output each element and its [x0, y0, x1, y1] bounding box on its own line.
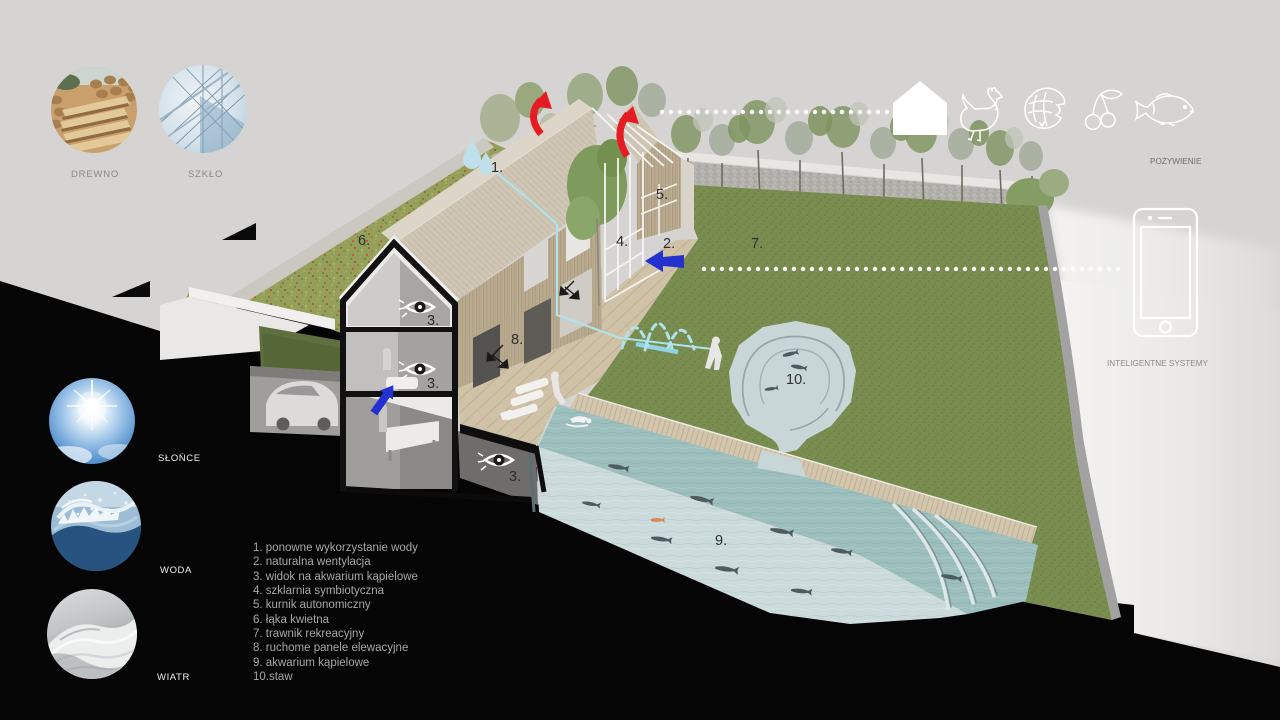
- svg-text:1. ponowne wykorzystanie wody: 1. ponowne wykorzystanie wody: [253, 542, 418, 554]
- svg-text:6. łąka kwietna: 6. łąka kwietna: [253, 614, 330, 626]
- svg-text:7. trawnik rekreacyjny: 7. trawnik rekreacyjny: [253, 628, 364, 640]
- svg-text:8.: 8.: [511, 332, 523, 348]
- svg-text:3.: 3.: [509, 469, 521, 485]
- svg-text:1.: 1.: [491, 160, 503, 176]
- svg-text:2. naturalna wentylacja: 2. naturalna wentylacja: [253, 556, 371, 568]
- svg-text:SŁOŃCE: SŁOŃCE: [158, 453, 201, 464]
- svg-text:5.: 5.: [656, 187, 668, 203]
- svg-text:POŻYWIENIE: POŻYWIENIE: [1150, 156, 1202, 166]
- svg-text:SZKŁO: SZKŁO: [188, 169, 223, 180]
- svg-text:2.: 2.: [663, 236, 675, 252]
- svg-text:3. widok na akwarium kąpielowe: 3. widok na akwarium kąpielowe: [253, 571, 418, 583]
- svg-text:3.: 3.: [427, 376, 439, 392]
- svg-text:6.: 6.: [358, 233, 370, 249]
- svg-text:5. kurnik autonomiczny: 5. kurnik autonomiczny: [253, 599, 371, 611]
- svg-text:WODA: WODA: [160, 565, 192, 576]
- svg-text:9.: 9.: [715, 533, 727, 549]
- svg-text:INTELIGENTNE SYSTEMY: INTELIGENTNE SYSTEMY: [1107, 359, 1209, 368]
- svg-text:9. akwarium kąpielowe: 9. akwarium kąpielowe: [253, 657, 369, 669]
- svg-text:10.: 10.: [786, 372, 806, 388]
- svg-text:WIATR: WIATR: [157, 672, 190, 683]
- svg-text:8. ruchome panele elewacyjne: 8. ruchome panele elewacyjne: [253, 642, 408, 654]
- svg-text:3.: 3.: [427, 313, 439, 329]
- svg-text:DREWNO: DREWNO: [71, 169, 119, 180]
- svg-text:7.: 7.: [751, 236, 763, 252]
- svg-text:4.: 4.: [616, 234, 628, 250]
- svg-text:4. szklarnia symbiotyczna: 4. szklarnia symbiotyczna: [253, 585, 385, 597]
- svg-text:10.staw: 10.staw: [253, 671, 293, 683]
